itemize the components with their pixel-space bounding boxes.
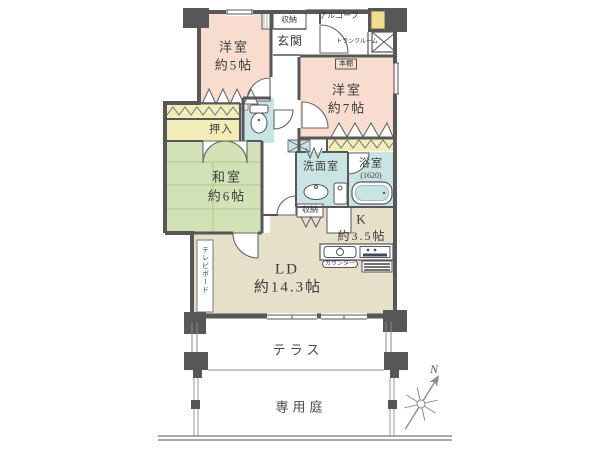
living-dining-label: LD <box>275 263 299 278</box>
hall-ld-door-arc <box>277 196 296 215</box>
genkan-label: 玄関 <box>277 35 303 47</box>
terrace-pillar-left <box>184 352 208 370</box>
kitchen-size: 約3.5帖 <box>337 230 386 242</box>
bedroom5-label: 洋室 <box>219 41 249 54</box>
tv-board-label: テレビボード <box>202 246 209 294</box>
terrace-label: テラス <box>273 344 324 357</box>
fence-post-left <box>191 400 200 409</box>
floor-plan-drawing <box>0 0 600 450</box>
alcove-label: アルコーブ <box>319 12 358 20</box>
bedroom7-window <box>393 63 399 94</box>
terrace-garden <box>158 322 452 440</box>
storage-top-label: 収納 <box>281 16 297 24</box>
fence-post-right <box>388 400 397 409</box>
floor-plan: 洋室 約5帖 洋室 約7帖 本棚 和室 約6帖 押入 玄関 収納 アルコーブ ト… <box>0 0 600 450</box>
bedroom7-size: 約7帖 <box>328 102 367 115</box>
trunk-room-label: トランクルーム <box>336 39 378 45</box>
garden-boundary <box>158 436 452 440</box>
toilet-door-arc <box>274 110 293 129</box>
bedroom7-label: 洋室 <box>332 84 362 97</box>
bathroom-label: 浴室 <box>359 159 383 170</box>
toilet-icon <box>250 105 268 133</box>
bathtub-icon <box>352 182 392 204</box>
oshiire-label: 押入 <box>209 125 233 136</box>
washbasin-icon <box>304 185 328 200</box>
meter-box <box>368 8 407 32</box>
hall-to-ld-floor <box>270 215 300 235</box>
compass-icon <box>391 366 454 438</box>
washer-space-icon <box>334 183 347 204</box>
bedroom5-size: 約5帖 <box>215 59 254 72</box>
tatami-room-label: 和室 <box>212 171 242 184</box>
kitchen-label: K <box>356 213 367 226</box>
compass-n-label: N <box>430 363 438 375</box>
washroom-label: 洗面室 <box>303 162 339 173</box>
bookshelf-label: 本棚 <box>335 59 357 70</box>
meter-box-icon <box>371 11 385 29</box>
counter-label: カウンター <box>322 260 358 268</box>
tatami-room-size: 約6帖 <box>208 190 247 203</box>
storage-mid-label: 収納 <box>302 206 318 214</box>
living-dining-size: 約14.3帖 <box>254 281 322 296</box>
terrace-pillar-right <box>384 352 408 370</box>
bathroom-size: (1620) <box>360 172 381 180</box>
garden-label: 専用庭 <box>275 401 326 414</box>
